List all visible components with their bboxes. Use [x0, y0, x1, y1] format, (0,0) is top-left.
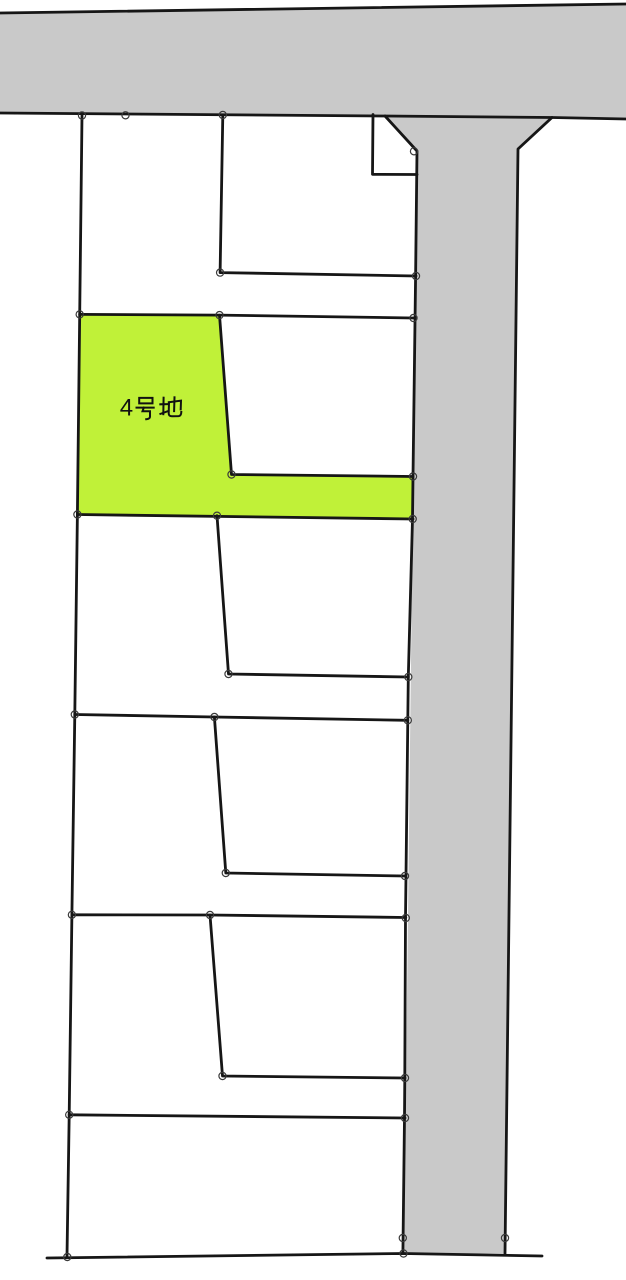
svg-text:4: 4 — [120, 395, 133, 422]
